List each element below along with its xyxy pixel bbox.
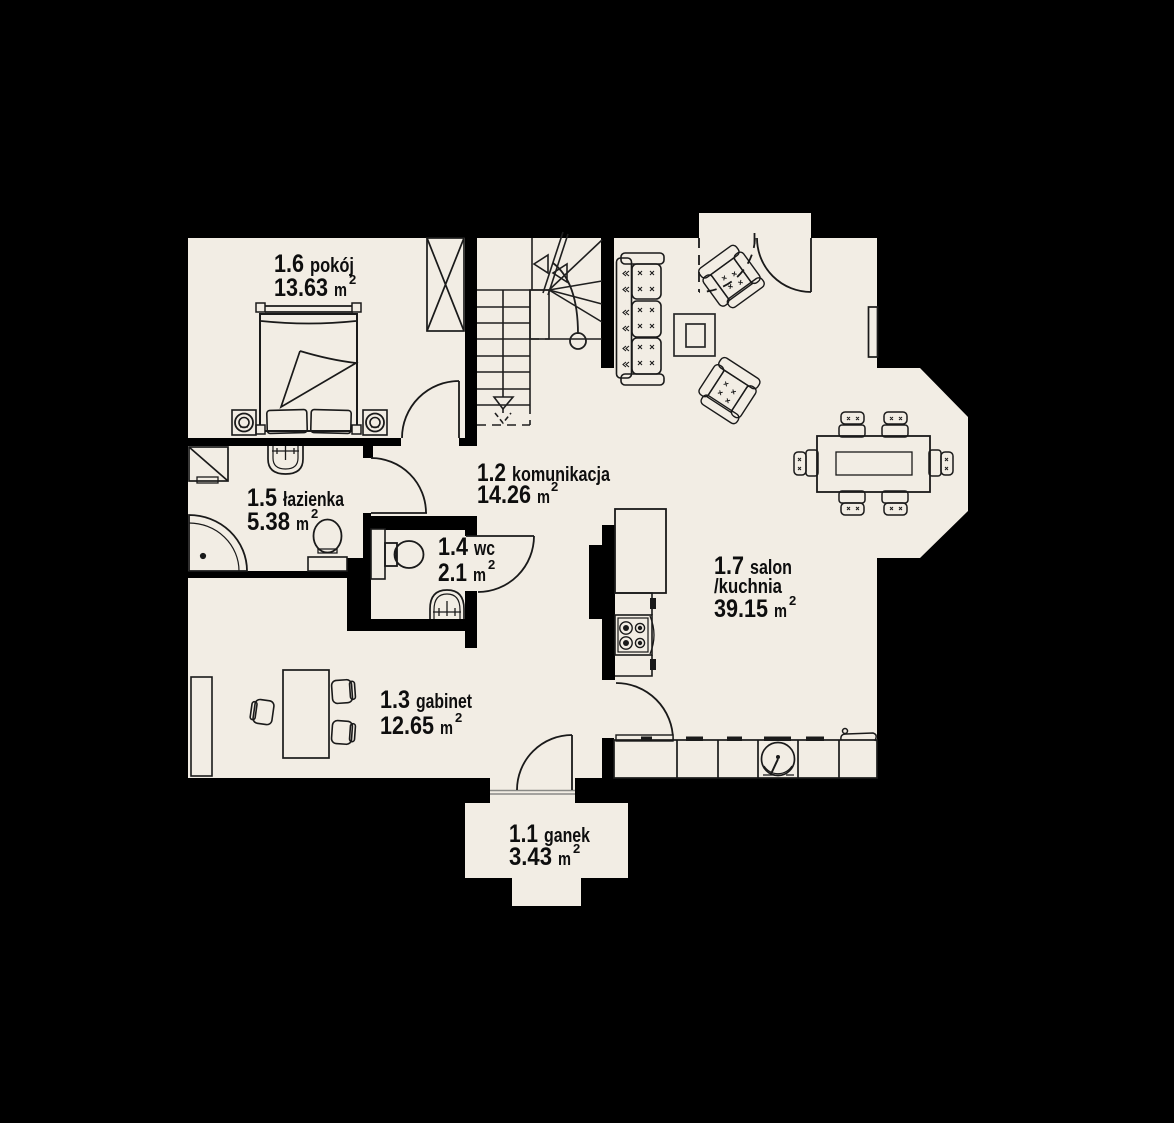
svg-text:2: 2 [789,593,796,608]
svg-text:13.63: 13.63 [274,274,328,302]
svg-text:5.38: 5.38 [247,508,290,536]
svg-text:m: m [334,280,347,300]
svg-text:12.65: 12.65 [380,712,434,740]
svg-text:m: m [537,487,550,507]
svg-text:39.15: 39.15 [714,595,768,623]
svg-text:2: 2 [349,272,356,287]
svg-text:2.1: 2.1 [438,559,467,587]
svg-text:gabinet: gabinet [416,691,472,713]
svg-text:2: 2 [311,506,318,521]
svg-text:m: m [558,849,571,869]
svg-text:1.3: 1.3 [380,686,410,714]
svg-text:2: 2 [551,479,558,494]
svg-text:m: m [473,565,486,585]
svg-text:m: m [440,718,453,738]
svg-text:14.26: 14.26 [477,481,531,509]
svg-text:1.4: 1.4 [438,533,468,561]
svg-text:m: m [296,514,309,534]
svg-text:2: 2 [488,557,495,572]
svg-text:m: m [774,601,787,621]
svg-text:2: 2 [455,710,462,725]
svg-text:2: 2 [573,841,580,856]
svg-text:3.43: 3.43 [509,843,552,871]
